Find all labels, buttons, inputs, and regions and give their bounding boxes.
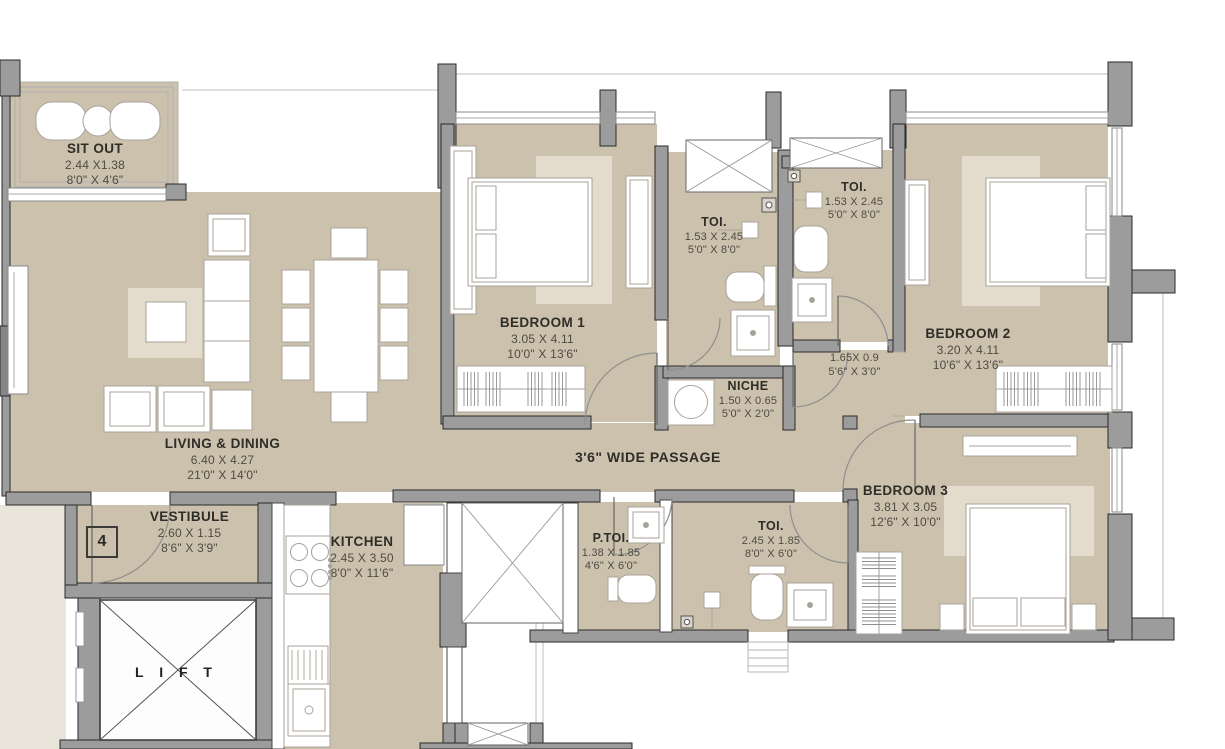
entry-steps (748, 642, 788, 672)
floor-plan-canvas (0, 0, 1225, 749)
floor-plan: SIT OUT 2.44 X1.38 8'0" X 4'6" LIVING & … (0, 0, 1225, 749)
washing-machine (668, 380, 714, 425)
kitchen-fixtures (284, 505, 332, 747)
lift-label: L I F T (135, 664, 218, 680)
unit-number-badge: 4 (86, 526, 118, 558)
wide-passage-label: 3'6" WIDE PASSAGE (575, 449, 721, 465)
sitout-planters (36, 102, 160, 140)
